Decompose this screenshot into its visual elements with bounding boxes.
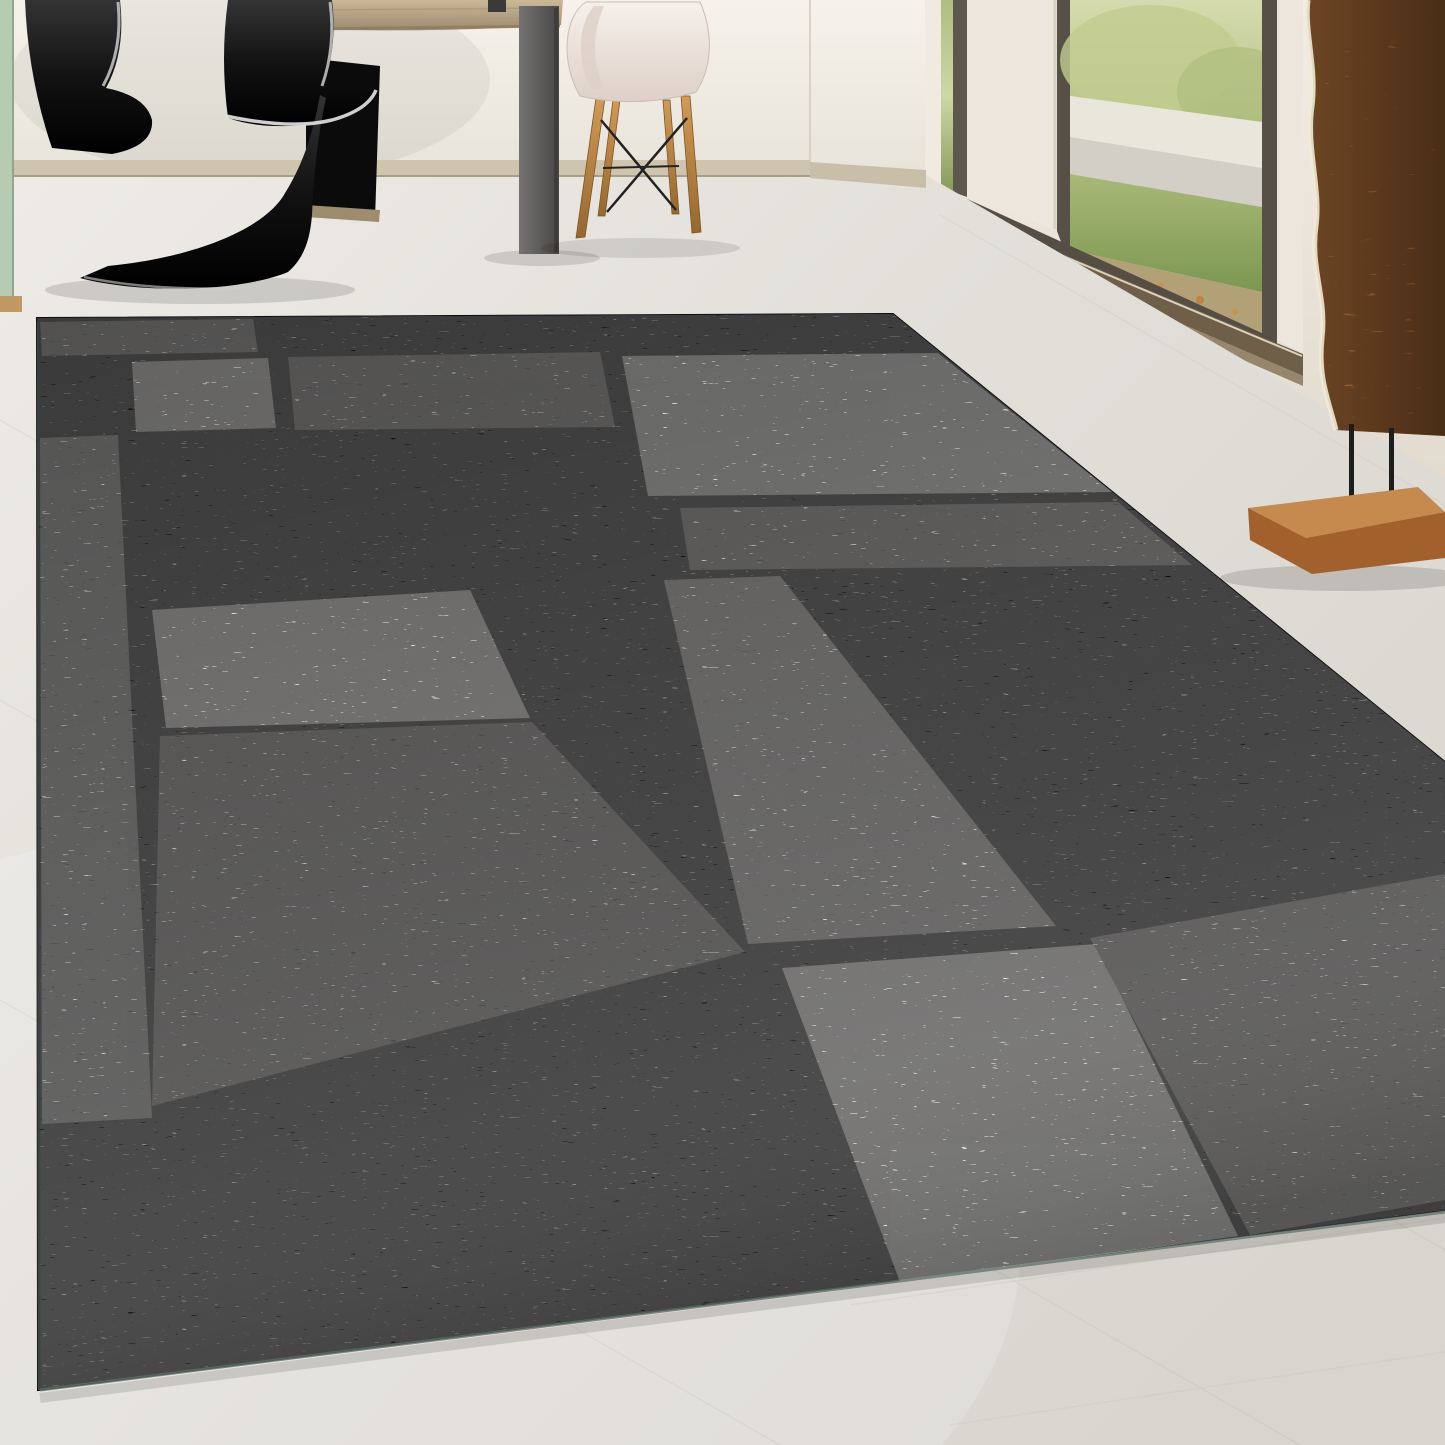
room-photo-canvas: [0, 0, 1445, 1445]
desk-item: [488, 0, 506, 12]
window-jamb: [925, 0, 941, 186]
rug-binding-left: [38, 322, 39, 1388]
window-sash-right: [1262, 0, 1277, 340]
driftwood-bark-texture: [1307, 0, 1445, 436]
desk-leg: [519, 6, 559, 254]
window-post: [967, 0, 1057, 230]
green-cabinet: [0, 0, 14, 300]
eames-chair-shadow: [540, 238, 740, 258]
window-mullion: [953, 0, 967, 197]
window-glass-left: [941, 0, 953, 192]
fallen-leaf: [1232, 309, 1238, 315]
green-cabinet-foot: [0, 296, 22, 312]
room-photo: [0, 0, 1445, 1445]
window-frame-right: [1277, 0, 1303, 354]
fallen-leaf: [1196, 296, 1204, 304]
